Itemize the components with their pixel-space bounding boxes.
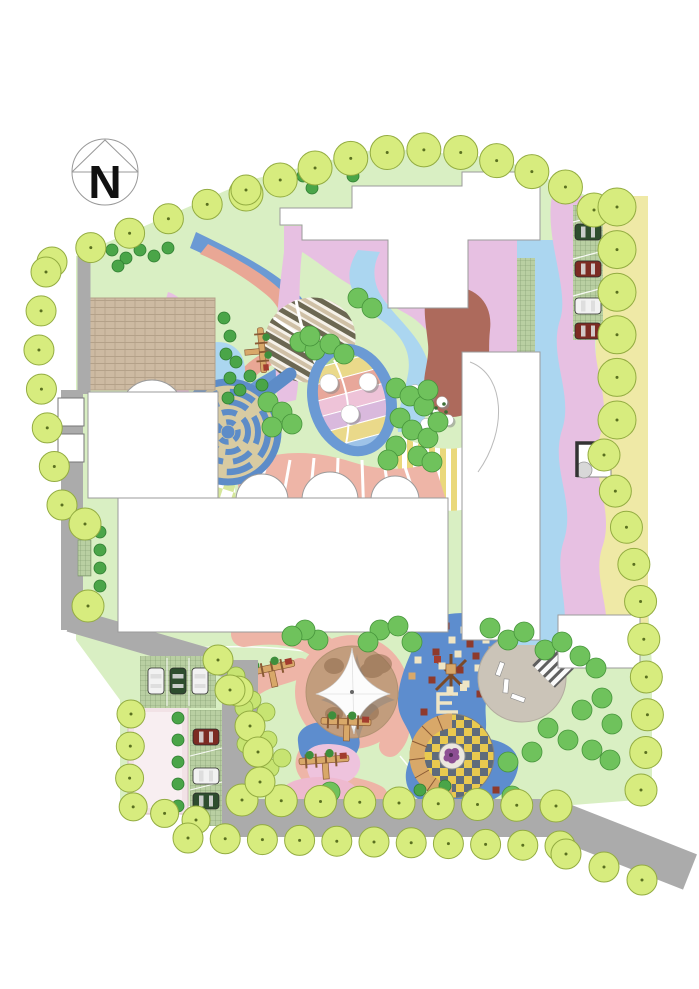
play-tile bbox=[447, 687, 454, 694]
tree-center-dot bbox=[195, 819, 198, 822]
tree-center-dot bbox=[128, 232, 131, 235]
play-tile bbox=[439, 663, 446, 670]
tree-center-dot bbox=[132, 805, 135, 808]
lawn-tree bbox=[522, 742, 542, 762]
tree-center-dot bbox=[616, 333, 619, 336]
tree-center-dot bbox=[40, 309, 43, 312]
shrub bbox=[172, 712, 184, 724]
tree-center-dot bbox=[565, 853, 568, 856]
tree-center-dot bbox=[224, 837, 227, 840]
tree-center-dot bbox=[128, 777, 131, 780]
tree-center-dot bbox=[163, 812, 166, 815]
car bbox=[575, 298, 601, 314]
tree-center-dot bbox=[644, 751, 647, 754]
bench bbox=[503, 679, 509, 693]
tree-center-dot bbox=[386, 151, 389, 154]
lawn-tree bbox=[358, 632, 378, 652]
tree-center-dot bbox=[603, 454, 606, 457]
shrub bbox=[162, 242, 174, 254]
tree-center-dot bbox=[459, 151, 462, 154]
lawn-tree bbox=[362, 298, 382, 318]
tree-center-dot bbox=[84, 523, 87, 526]
lawn-dot bbox=[442, 402, 446, 406]
stepping-stone bbox=[359, 373, 377, 391]
tree-center-dot bbox=[206, 203, 209, 206]
lawn-tree bbox=[388, 616, 408, 636]
lawn-tree bbox=[572, 700, 592, 720]
tree-center-dot bbox=[40, 388, 43, 391]
tree-center-dot bbox=[642, 638, 645, 641]
tree-center-dot bbox=[279, 179, 282, 182]
tree-center-dot bbox=[241, 799, 244, 802]
tree-center-dot bbox=[335, 840, 338, 843]
tree-center-dot bbox=[46, 426, 49, 429]
lawn-tree bbox=[378, 450, 398, 470]
car bbox=[170, 668, 186, 694]
play-tile bbox=[467, 641, 474, 648]
tree-center-dot bbox=[616, 206, 619, 209]
tree-center-dot bbox=[358, 801, 361, 804]
site-plan: N bbox=[0, 0, 699, 989]
shrub bbox=[218, 312, 230, 324]
lawn-tree bbox=[300, 326, 320, 346]
tree-center-dot bbox=[625, 526, 628, 529]
lawn-tree bbox=[262, 417, 282, 437]
car bbox=[192, 668, 208, 694]
tree-center-dot bbox=[476, 803, 479, 806]
building-east bbox=[462, 352, 540, 640]
shrub bbox=[414, 784, 426, 796]
lawn-tree bbox=[592, 688, 612, 708]
tree-center-dot bbox=[129, 745, 132, 748]
shrub bbox=[234, 384, 246, 396]
tree-center-dot bbox=[398, 802, 401, 805]
play-tile bbox=[457, 667, 464, 674]
play-tile bbox=[455, 651, 462, 658]
lawn-dot bbox=[434, 406, 438, 410]
shrub bbox=[230, 356, 242, 368]
tree-center-dot bbox=[130, 713, 133, 716]
play-tile bbox=[493, 787, 500, 794]
shrub bbox=[94, 544, 106, 556]
tree-center-dot bbox=[53, 465, 56, 468]
tree-center-dot bbox=[641, 879, 644, 882]
tree-center-dot bbox=[564, 185, 567, 188]
shrub bbox=[256, 379, 268, 391]
lawn-tree bbox=[538, 718, 558, 738]
tree-center-dot bbox=[249, 725, 252, 728]
shrub bbox=[172, 756, 184, 768]
lawn-tree bbox=[582, 740, 602, 760]
tree-center-dot bbox=[187, 837, 190, 840]
tree-center-dot bbox=[447, 842, 450, 845]
tree-center-dot bbox=[45, 271, 48, 274]
lawn-tree bbox=[402, 632, 422, 652]
tree-center-dot bbox=[640, 789, 643, 792]
tree-center-dot bbox=[259, 781, 262, 784]
tree-center-dot bbox=[593, 209, 596, 212]
tree-center-dot bbox=[319, 800, 322, 803]
shrub bbox=[224, 330, 236, 342]
north-arrow: N bbox=[72, 139, 138, 208]
tree-center-dot bbox=[257, 751, 260, 754]
tree-center-dot bbox=[645, 675, 648, 678]
lawn-tree bbox=[282, 414, 302, 434]
stepping-stone bbox=[437, 397, 448, 408]
building-west-wing bbox=[88, 380, 218, 498]
lawn-tree bbox=[480, 618, 500, 638]
tree-center-dot bbox=[616, 419, 619, 422]
shrub bbox=[148, 250, 160, 262]
lawn-tree bbox=[498, 752, 518, 772]
shrub bbox=[224, 372, 236, 384]
shrub bbox=[172, 778, 184, 790]
tree-center-dot bbox=[603, 866, 606, 869]
tree-center-dot bbox=[61, 504, 64, 507]
play-tile bbox=[421, 709, 428, 716]
tree-center-dot bbox=[555, 805, 558, 808]
tree-center-dot bbox=[261, 838, 264, 841]
lawn-tree bbox=[514, 622, 534, 642]
lawn-dot bbox=[444, 410, 448, 414]
tree-center-dot bbox=[280, 799, 283, 802]
tree-center-dot bbox=[484, 843, 487, 846]
shrub bbox=[94, 580, 106, 592]
tree-center-dot bbox=[646, 713, 649, 716]
lawn-tree bbox=[602, 714, 622, 734]
car bbox=[575, 261, 601, 277]
tree-center-dot bbox=[87, 605, 90, 608]
shrub bbox=[106, 244, 118, 256]
lawn-tree bbox=[586, 658, 606, 678]
tree-center-dot bbox=[298, 839, 301, 842]
tree-center-dot bbox=[89, 246, 92, 249]
lawn-tree bbox=[600, 750, 620, 770]
lawn-tree bbox=[334, 344, 354, 364]
tree-center-dot bbox=[616, 376, 619, 379]
play-tile bbox=[409, 673, 416, 680]
lawn-tree bbox=[418, 380, 438, 400]
tree-center-dot bbox=[530, 170, 533, 173]
shrub bbox=[112, 260, 124, 272]
shrub bbox=[94, 562, 106, 574]
tree-center-dot bbox=[422, 148, 425, 151]
tree-center-dot bbox=[167, 217, 170, 220]
tree-center-dot bbox=[245, 189, 248, 192]
tree-center-dot bbox=[410, 841, 413, 844]
tree-center-dot bbox=[495, 159, 498, 162]
play-tile bbox=[463, 681, 470, 688]
lawn-tree bbox=[428, 412, 448, 432]
site-plan-svg: N bbox=[0, 0, 699, 989]
shrub bbox=[222, 392, 234, 404]
lawn-tree bbox=[558, 730, 578, 750]
play-tile bbox=[473, 653, 480, 660]
tree-center-dot bbox=[229, 689, 232, 692]
lawn-tree bbox=[552, 632, 572, 652]
tree-center-dot bbox=[616, 248, 619, 251]
shrub bbox=[220, 348, 232, 360]
play-tile bbox=[429, 677, 436, 684]
car bbox=[193, 729, 219, 745]
tree-center-dot bbox=[437, 802, 440, 805]
tree-center-dot bbox=[37, 348, 40, 351]
tree-center-dot bbox=[349, 157, 352, 160]
shrub bbox=[244, 370, 256, 382]
tree-center-dot bbox=[217, 659, 220, 662]
car bbox=[575, 323, 601, 339]
tree-center-dot bbox=[521, 844, 524, 847]
tree-center-dot bbox=[639, 600, 642, 603]
stepping-stone bbox=[341, 405, 359, 423]
tree-center-dot bbox=[632, 563, 635, 566]
tree-center-dot bbox=[614, 490, 617, 493]
car bbox=[193, 768, 219, 784]
tree-center-dot bbox=[314, 166, 317, 169]
lawn-tree bbox=[282, 626, 302, 646]
small-tree bbox=[273, 749, 291, 767]
brick-plaza bbox=[88, 298, 215, 390]
play-tile bbox=[449, 637, 456, 644]
play-tile bbox=[433, 649, 440, 656]
road-entry-booth bbox=[58, 398, 84, 426]
tree-center-dot bbox=[373, 841, 376, 844]
tree-center-dot bbox=[616, 291, 619, 294]
tree-center-dot bbox=[515, 804, 518, 807]
stepping-stone bbox=[320, 374, 338, 392]
lawn-tree bbox=[422, 452, 442, 472]
bike-paving bbox=[78, 540, 91, 576]
play-tile bbox=[415, 657, 422, 664]
shrub bbox=[172, 734, 184, 746]
car bbox=[148, 668, 164, 694]
compass-n-label: N bbox=[88, 156, 121, 208]
